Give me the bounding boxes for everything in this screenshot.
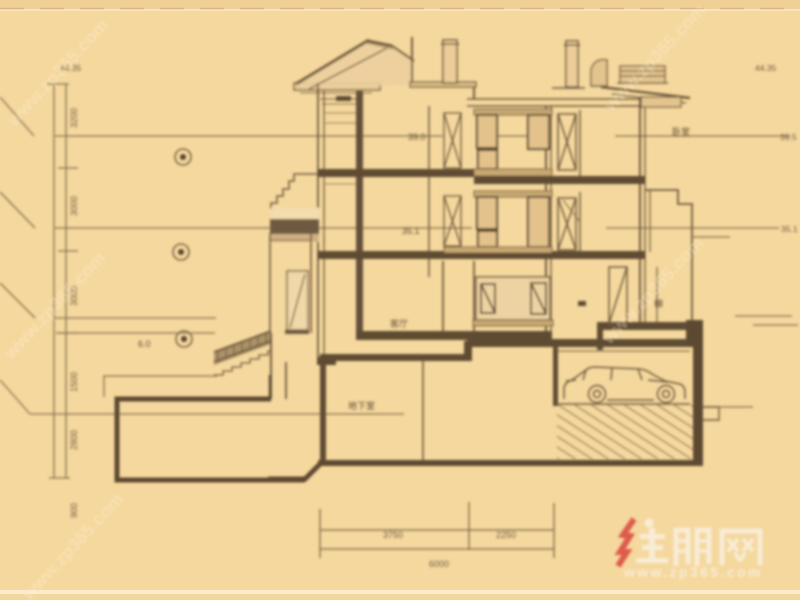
svg-text:3000: 3000 (69, 196, 79, 216)
svg-text:客厅: 客厅 (390, 318, 408, 329)
svg-text:地下室: 地下室 (348, 400, 375, 411)
svg-text:www.zp365.com: www.zp365.com (623, 564, 763, 580)
svg-text:3750: 3750 (383, 530, 403, 540)
svg-text:3200: 3200 (69, 108, 79, 128)
svg-text:44.35: 44.35 (755, 63, 777, 73)
svg-text:39.0: 39.0 (408, 132, 426, 142)
svg-text:2800: 2800 (69, 430, 79, 450)
svg-text:6000: 6000 (429, 559, 449, 569)
svg-text:卧室: 卧室 (672, 126, 690, 137)
svg-text:6.0: 6.0 (138, 339, 151, 349)
svg-text:1500: 1500 (69, 372, 79, 392)
svg-text:900: 900 (69, 503, 79, 518)
svg-text:35.1: 35.1 (781, 224, 798, 234)
svg-text:2250: 2250 (496, 530, 516, 540)
svg-text:39.5: 39.5 (780, 132, 797, 142)
svg-text:35.1: 35.1 (402, 226, 420, 236)
